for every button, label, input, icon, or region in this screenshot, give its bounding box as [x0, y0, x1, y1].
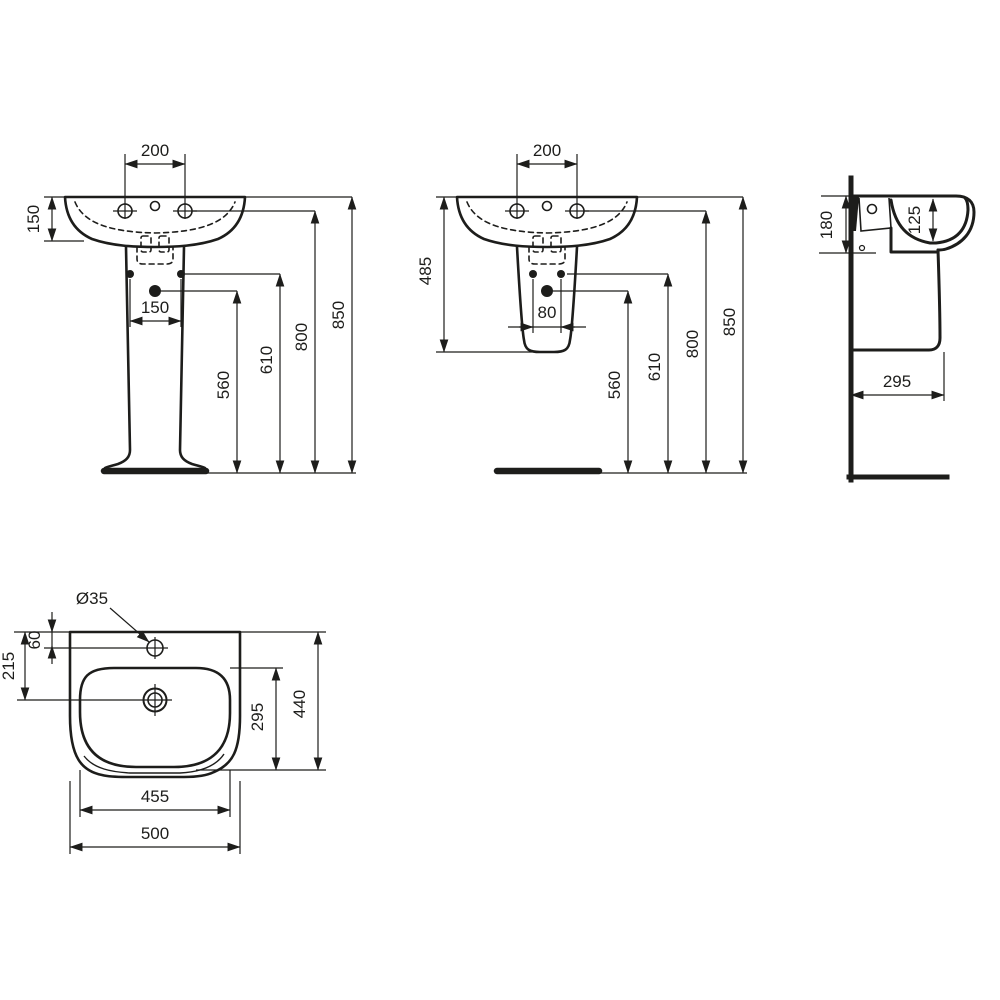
dim-height-taphole: 800	[192, 211, 315, 473]
dim-label-560: 560	[605, 371, 624, 399]
dim-tap-hole-diameter: Ø35	[76, 589, 149, 642]
dim-drain-offset: 215	[0, 632, 25, 700]
view-front-full-pedestal: 200 150 150 560 610 8	[24, 141, 356, 473]
dim-label-295-side: 295	[883, 372, 911, 391]
dim-bowl-depth: 125	[905, 199, 933, 241]
view-side-section: 180 125 295	[817, 178, 974, 480]
dim-label-215: 215	[0, 652, 18, 680]
tap-hole-left-icon	[113, 203, 137, 219]
dim-label-560: 560	[214, 371, 233, 399]
dim-label-200: 200	[533, 141, 561, 160]
basin-outline	[65, 197, 245, 247]
dim-label-850: 850	[720, 308, 739, 336]
dim-label-800: 800	[292, 323, 311, 351]
pedestal-outline	[105, 247, 205, 468]
dim-height-taphole: 800	[584, 211, 706, 473]
lower-fixing-dot	[860, 246, 865, 251]
dim-label-610: 610	[645, 353, 664, 381]
dim-height-drain: 560	[161, 291, 237, 473]
view-front-semi-pedestal: 200 485 80 560 610	[416, 141, 747, 473]
basin-inner-rim-dashed	[75, 202, 235, 233]
dim-label-455: 455	[141, 787, 169, 806]
fixing-hole-left-dot	[126, 270, 134, 278]
dim-label-diam-35: Ø35	[76, 589, 108, 608]
dim-tap-hole-offset: 60	[25, 612, 52, 664]
plan-bowl-outline	[80, 668, 230, 767]
dim-label-440: 440	[290, 690, 309, 718]
dim-front-height: 180	[817, 196, 876, 253]
dim-label-125: 125	[905, 206, 924, 234]
view-plan: Ø35 60 215 295	[0, 589, 326, 854]
trap-dashed-detail	[529, 236, 565, 264]
basin-inner-rim-dashed	[467, 202, 627, 233]
dim-label-60: 60	[25, 631, 44, 650]
drain-hole-dot	[149, 285, 161, 297]
dim-overall-depth: 440	[290, 632, 318, 770]
dim-label-150-fixing: 150	[141, 298, 169, 317]
fixing-hole-right-dot	[177, 270, 185, 278]
dim-basin-semi-height: 485	[416, 197, 532, 352]
basin-profile-inner-bowl	[891, 198, 968, 243]
trap-dashed-detail	[137, 236, 173, 264]
dim-label-610: 610	[257, 346, 276, 374]
dim-tap-hole-spacing: 200	[125, 141, 185, 205]
semi-pedestal-profile	[851, 250, 940, 350]
fixing-hole-left-dot	[529, 270, 537, 278]
tap-hole-left-icon	[505, 203, 529, 219]
technical-drawing-canvas: 200 150 150 560 610 8	[0, 0, 1000, 1000]
dim-label-850: 850	[329, 301, 348, 329]
section-hatch	[852, 197, 859, 231]
dim-bowl-width: 455	[80, 787, 230, 810]
dim-label-800: 800	[683, 330, 702, 358]
dim-height-drain: 560	[553, 291, 628, 473]
overflow-hole-icon	[543, 202, 552, 211]
dim-label-180: 180	[817, 211, 836, 239]
dim-tap-hole-spacing: 200	[517, 141, 577, 205]
overflow-hole-icon	[151, 202, 160, 211]
dim-label-485: 485	[416, 257, 435, 285]
semi-pedestal-outline	[517, 247, 577, 352]
dim-label-295-plan: 295	[248, 703, 267, 731]
tap-deck-section	[859, 198, 891, 231]
deck-fixing-hole-icon	[868, 205, 877, 214]
dim-overall-width: 500	[70, 824, 240, 847]
dim-label-150-basin: 150	[24, 205, 43, 233]
dim-label-200: 200	[141, 141, 169, 160]
drawing-svg: 200 150 150 560 610 8	[0, 0, 1000, 1000]
fixing-hole-right-dot	[557, 270, 565, 278]
dim-projection: 295	[851, 352, 944, 401]
dim-bowl-length: 295	[248, 668, 276, 770]
drain-hole-dot	[541, 285, 553, 297]
dim-label-80: 80	[538, 303, 557, 322]
dim-label-500: 500	[141, 824, 169, 843]
basin-outline	[457, 197, 637, 247]
